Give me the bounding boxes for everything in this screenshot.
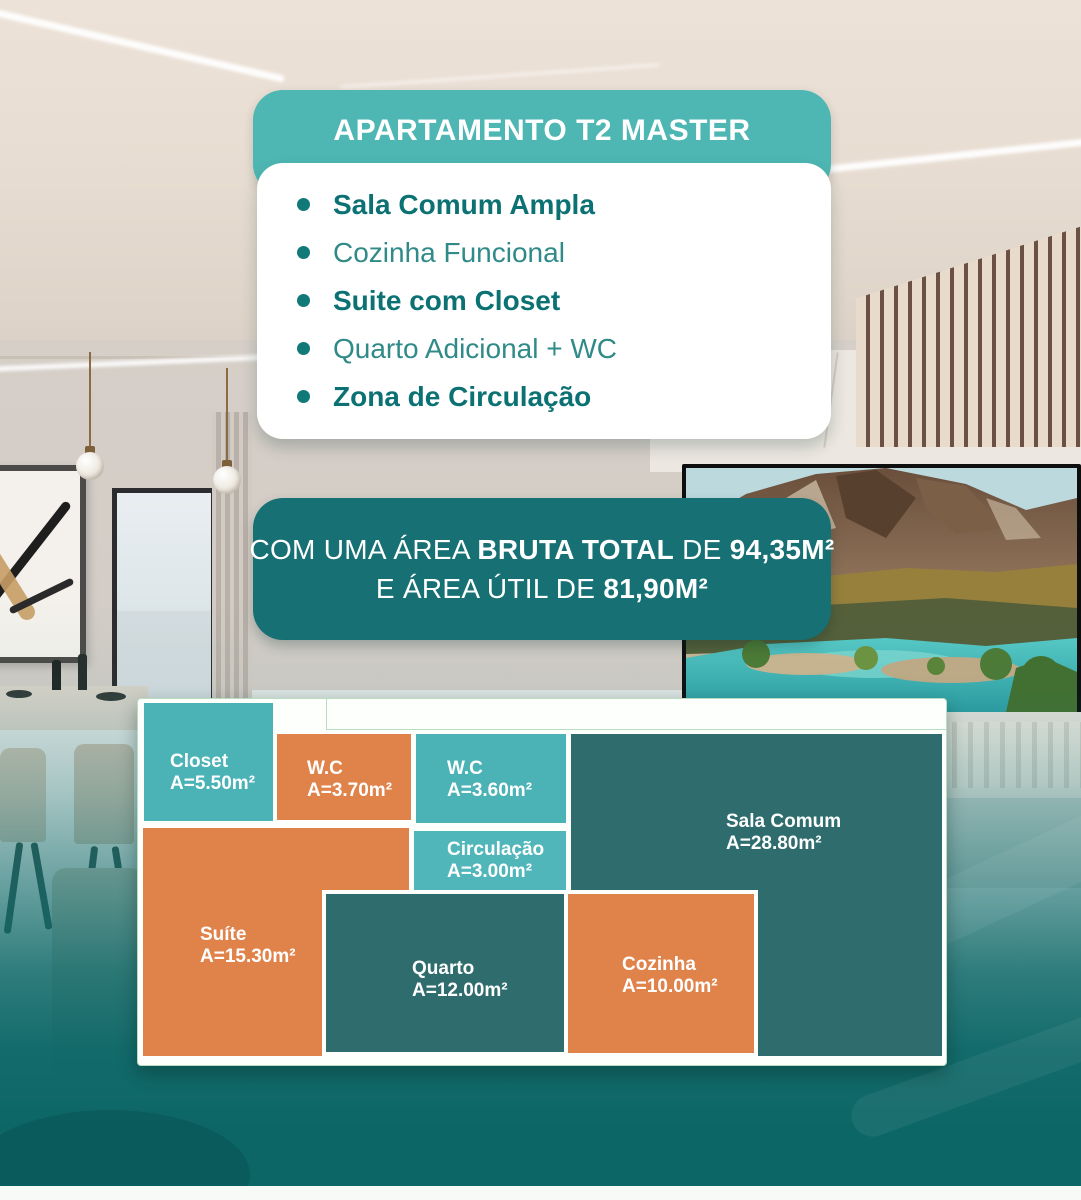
room-area: A=3.60m² [447,780,532,802]
bottle [52,660,61,690]
plate [6,690,32,698]
room-name: Cozinha [622,954,718,976]
room-area: A=3.70m² [307,780,392,802]
room-name: Circulação [447,839,544,861]
room-closet: ClosetA=5.50m² [144,703,273,821]
room-label-quarto: QuartoA=12.00m² [412,958,508,1002]
room-label-cozinha: CozinhaA=10.00m² [622,954,718,998]
feature-item-0: Sala Comum Ampla [333,189,811,220]
room-area: A=12.00m² [412,980,508,1002]
room-circulacao: CirculaçãoA=3.00m² [414,831,566,890]
room-wc-1: W.CA=3.70m² [277,734,411,820]
room-area: A=5.50m² [170,773,255,795]
room-cozinha: CozinhaA=10.00m² [564,890,758,1057]
bullet-dot-icon [297,198,310,211]
room-name: W.C [307,758,392,780]
room-wc-2: W.CA=3.60m² [416,734,566,823]
flyer-canvas: APARTAMENTO T2 MASTER Sala Comum AmplaCo… [0,0,1081,1200]
bullet-dot-icon [297,342,310,355]
feature-item-1: Cozinha Funcional [333,237,811,268]
plan-border-step [326,729,946,730]
plan-border-step [326,699,327,729]
area-value-bold: 81,90M² [603,573,708,604]
room-label-wc-1: W.CA=3.70m² [307,758,392,802]
bullet-dot-icon [297,294,310,307]
room-quarto: QuartoA=12.00m² [322,890,570,1056]
bullet-dot-icon [297,246,310,259]
floor-plan-card: ClosetA=5.50m²W.CA=3.70m²W.CA=3.60m²Circ… [137,698,947,1066]
room-name: Suíte [200,924,296,946]
curtain [212,412,252,704]
window [112,488,216,698]
feature-label: Cozinha Funcional [333,237,565,268]
area-text: E ÁREA ÚTIL DE [376,573,604,604]
area-summary-line2: E ÁREA ÚTIL DE 81,90M² [376,573,708,605]
pendant-lamp-globe [76,452,104,480]
room-name: Closet [170,751,255,773]
pendant-lamp-globe [213,466,241,494]
pendant-lamp-rod [89,352,91,448]
dining-chair [0,748,46,842]
area-summary-card: COM UMA ÁREA BRUTA TOTAL DE 94,35M² E ÁR… [253,498,831,640]
dining-chair [74,744,134,844]
room-name: W.C [447,758,532,780]
pendant-lamp-rod [226,368,228,462]
area-value-bold: BRUTA TOTAL [477,534,674,565]
page-title: APARTAMENTO T2 MASTER [253,114,831,148]
room-label-circulacao: CirculaçãoA=3.00m² [447,839,544,883]
area-text: DE [674,534,730,565]
room-label-sala-comum: Sala ComumA=28.80m² [726,811,841,855]
feature-label: Zona de Circulação [333,381,591,412]
feature-label: Sala Comum Ampla [333,189,595,220]
area-text: COM UMA ÁREA [249,534,477,565]
plate [96,692,126,701]
feature-label: Quarto Adicional + WC [333,333,617,364]
feature-label: Suite com Closet [333,285,560,316]
feature-item-4: Zona de Circulação [333,381,811,412]
room-area: A=3.00m² [447,861,544,883]
abstract-painting [0,465,86,663]
feature-item-3: Quarto Adicional + WC [333,333,811,364]
room-label-suite: SuíteA=15.30m² [200,924,296,968]
room-area: A=15.30m² [200,946,296,968]
bullet-dot-icon [297,390,310,403]
room-area: A=10.00m² [622,976,718,998]
room-name: Sala Comum [726,811,841,833]
room-label-wc-2: W.CA=3.60m² [447,758,532,802]
sofa [52,868,144,1078]
bottle [78,654,87,690]
area-value-bold: 94,35M² [730,534,835,565]
features-card: Sala Comum AmplaCozinha FuncionalSuite c… [257,163,831,439]
room-label-closet: ClosetA=5.50m² [170,751,255,795]
area-summary-line1: COM UMA ÁREA BRUTA TOTAL DE 94,35M² [249,534,834,566]
room-name: Quarto [412,958,508,980]
feature-item-2: Suite com Closet [333,285,811,316]
bottom-white-strip [0,1186,1081,1200]
window-glass [117,611,211,698]
features-list: Sala Comum AmplaCozinha FuncionalSuite c… [333,189,811,429]
room-area: A=28.80m² [726,833,841,855]
